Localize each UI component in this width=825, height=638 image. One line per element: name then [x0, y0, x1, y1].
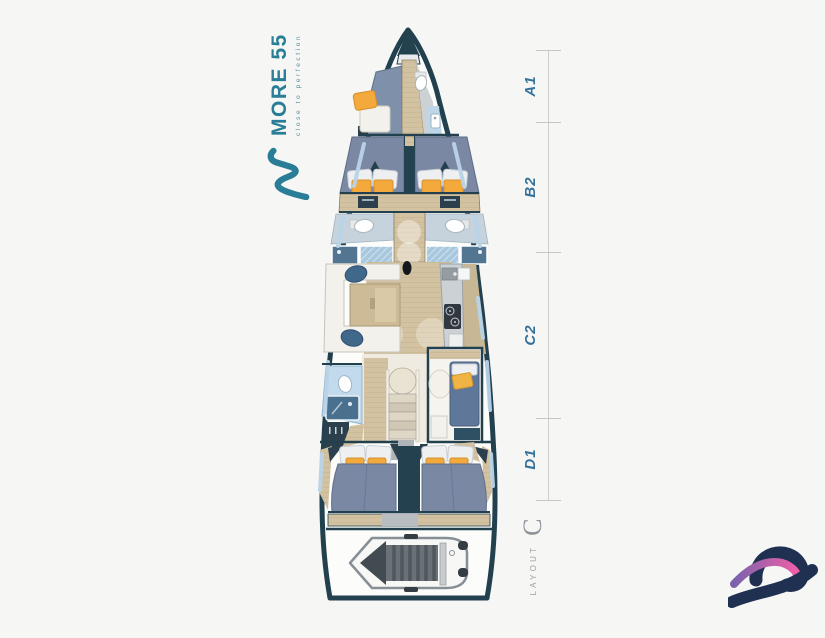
cabin-c2	[428, 348, 482, 442]
sink-icon	[431, 114, 440, 128]
dinghy	[350, 534, 468, 592]
shower-head-icon	[478, 250, 482, 254]
dimension-tick	[536, 50, 561, 51]
stove-icon	[444, 304, 461, 329]
dimension-tick	[536, 122, 561, 123]
owner-cabin	[353, 60, 424, 135]
aft-divider	[398, 446, 420, 512]
double-bed	[332, 464, 396, 512]
section-label-a1: A1	[521, 66, 541, 106]
locker	[454, 428, 480, 440]
section-label-d1: D1	[521, 439, 541, 479]
transom-band	[328, 514, 490, 526]
wave-logo-icon	[728, 528, 820, 628]
orange-cushion	[422, 180, 441, 194]
corridor	[394, 212, 425, 266]
section-label-b2: B2	[521, 167, 541, 207]
section-label-c2: C2	[521, 315, 541, 355]
dimension-line	[548, 50, 549, 500]
dresser-band	[339, 194, 480, 212]
sink-icon	[326, 396, 359, 420]
aft-cabin-starboard	[420, 442, 492, 512]
orange-cushion	[353, 90, 378, 111]
layout-badge: LAYOUT C	[518, 512, 548, 602]
berth-sheet	[360, 106, 390, 132]
yacht-floorplan	[312, 22, 507, 607]
orange-cushion	[444, 180, 463, 194]
dimension-tick	[536, 500, 561, 501]
brand-tagline: close to perfection	[295, 33, 302, 136]
dimension-tick	[536, 252, 561, 253]
mast	[403, 261, 412, 275]
brand-name: MORE 55	[268, 33, 292, 136]
tender-garage	[350, 534, 468, 592]
page: MORE 55 close to perfection	[0, 0, 825, 638]
layout-variant-letter: C	[518, 519, 548, 536]
double-bed	[422, 464, 486, 512]
dimension-tick	[536, 418, 561, 419]
layout-word: LAYOUT	[529, 545, 538, 596]
salon-settee	[324, 263, 400, 352]
shower-tray	[332, 246, 358, 264]
orange-cushion	[374, 180, 393, 194]
brand-text: MORE 55 close to perfection	[268, 33, 302, 136]
yellow-cushion	[452, 372, 473, 389]
shower-tray	[461, 246, 487, 264]
shower-head-icon	[337, 250, 341, 254]
wave-m-icon	[258, 146, 312, 200]
